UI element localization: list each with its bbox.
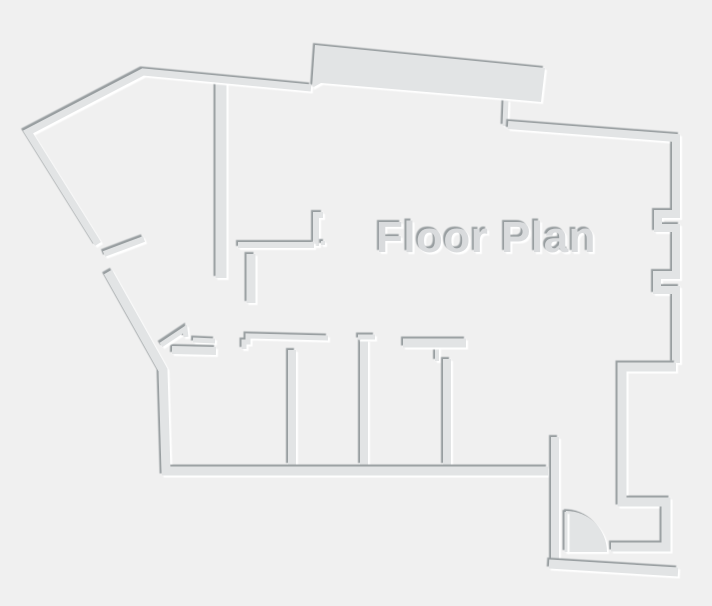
floor-plan-title: Floor Plan [376, 213, 596, 262]
rooms-top-wall-middle [244, 336, 328, 349]
walls-layer [28, 45, 678, 572]
floor-plan-canvas: Floor Plan [0, 0, 712, 606]
rooms-top-stub [193, 340, 215, 341]
room1-top-wall [172, 350, 216, 351]
room1-angled-wall [161, 329, 186, 345]
right-hook-wall [611, 367, 676, 547]
door-swing-arc [566, 511, 607, 552]
top-band-wall [312, 45, 545, 102]
hinge-dot [321, 241, 325, 245]
diagonal-door-stub [104, 239, 144, 254]
band-door-post [505, 100, 506, 126]
bottom-outer-wall [549, 564, 678, 572]
outer-wall-top-left [28, 72, 311, 244]
floor-plan-svg: Floor Plan [0, 0, 712, 606]
outer-wall-left-bottom [108, 272, 548, 471]
